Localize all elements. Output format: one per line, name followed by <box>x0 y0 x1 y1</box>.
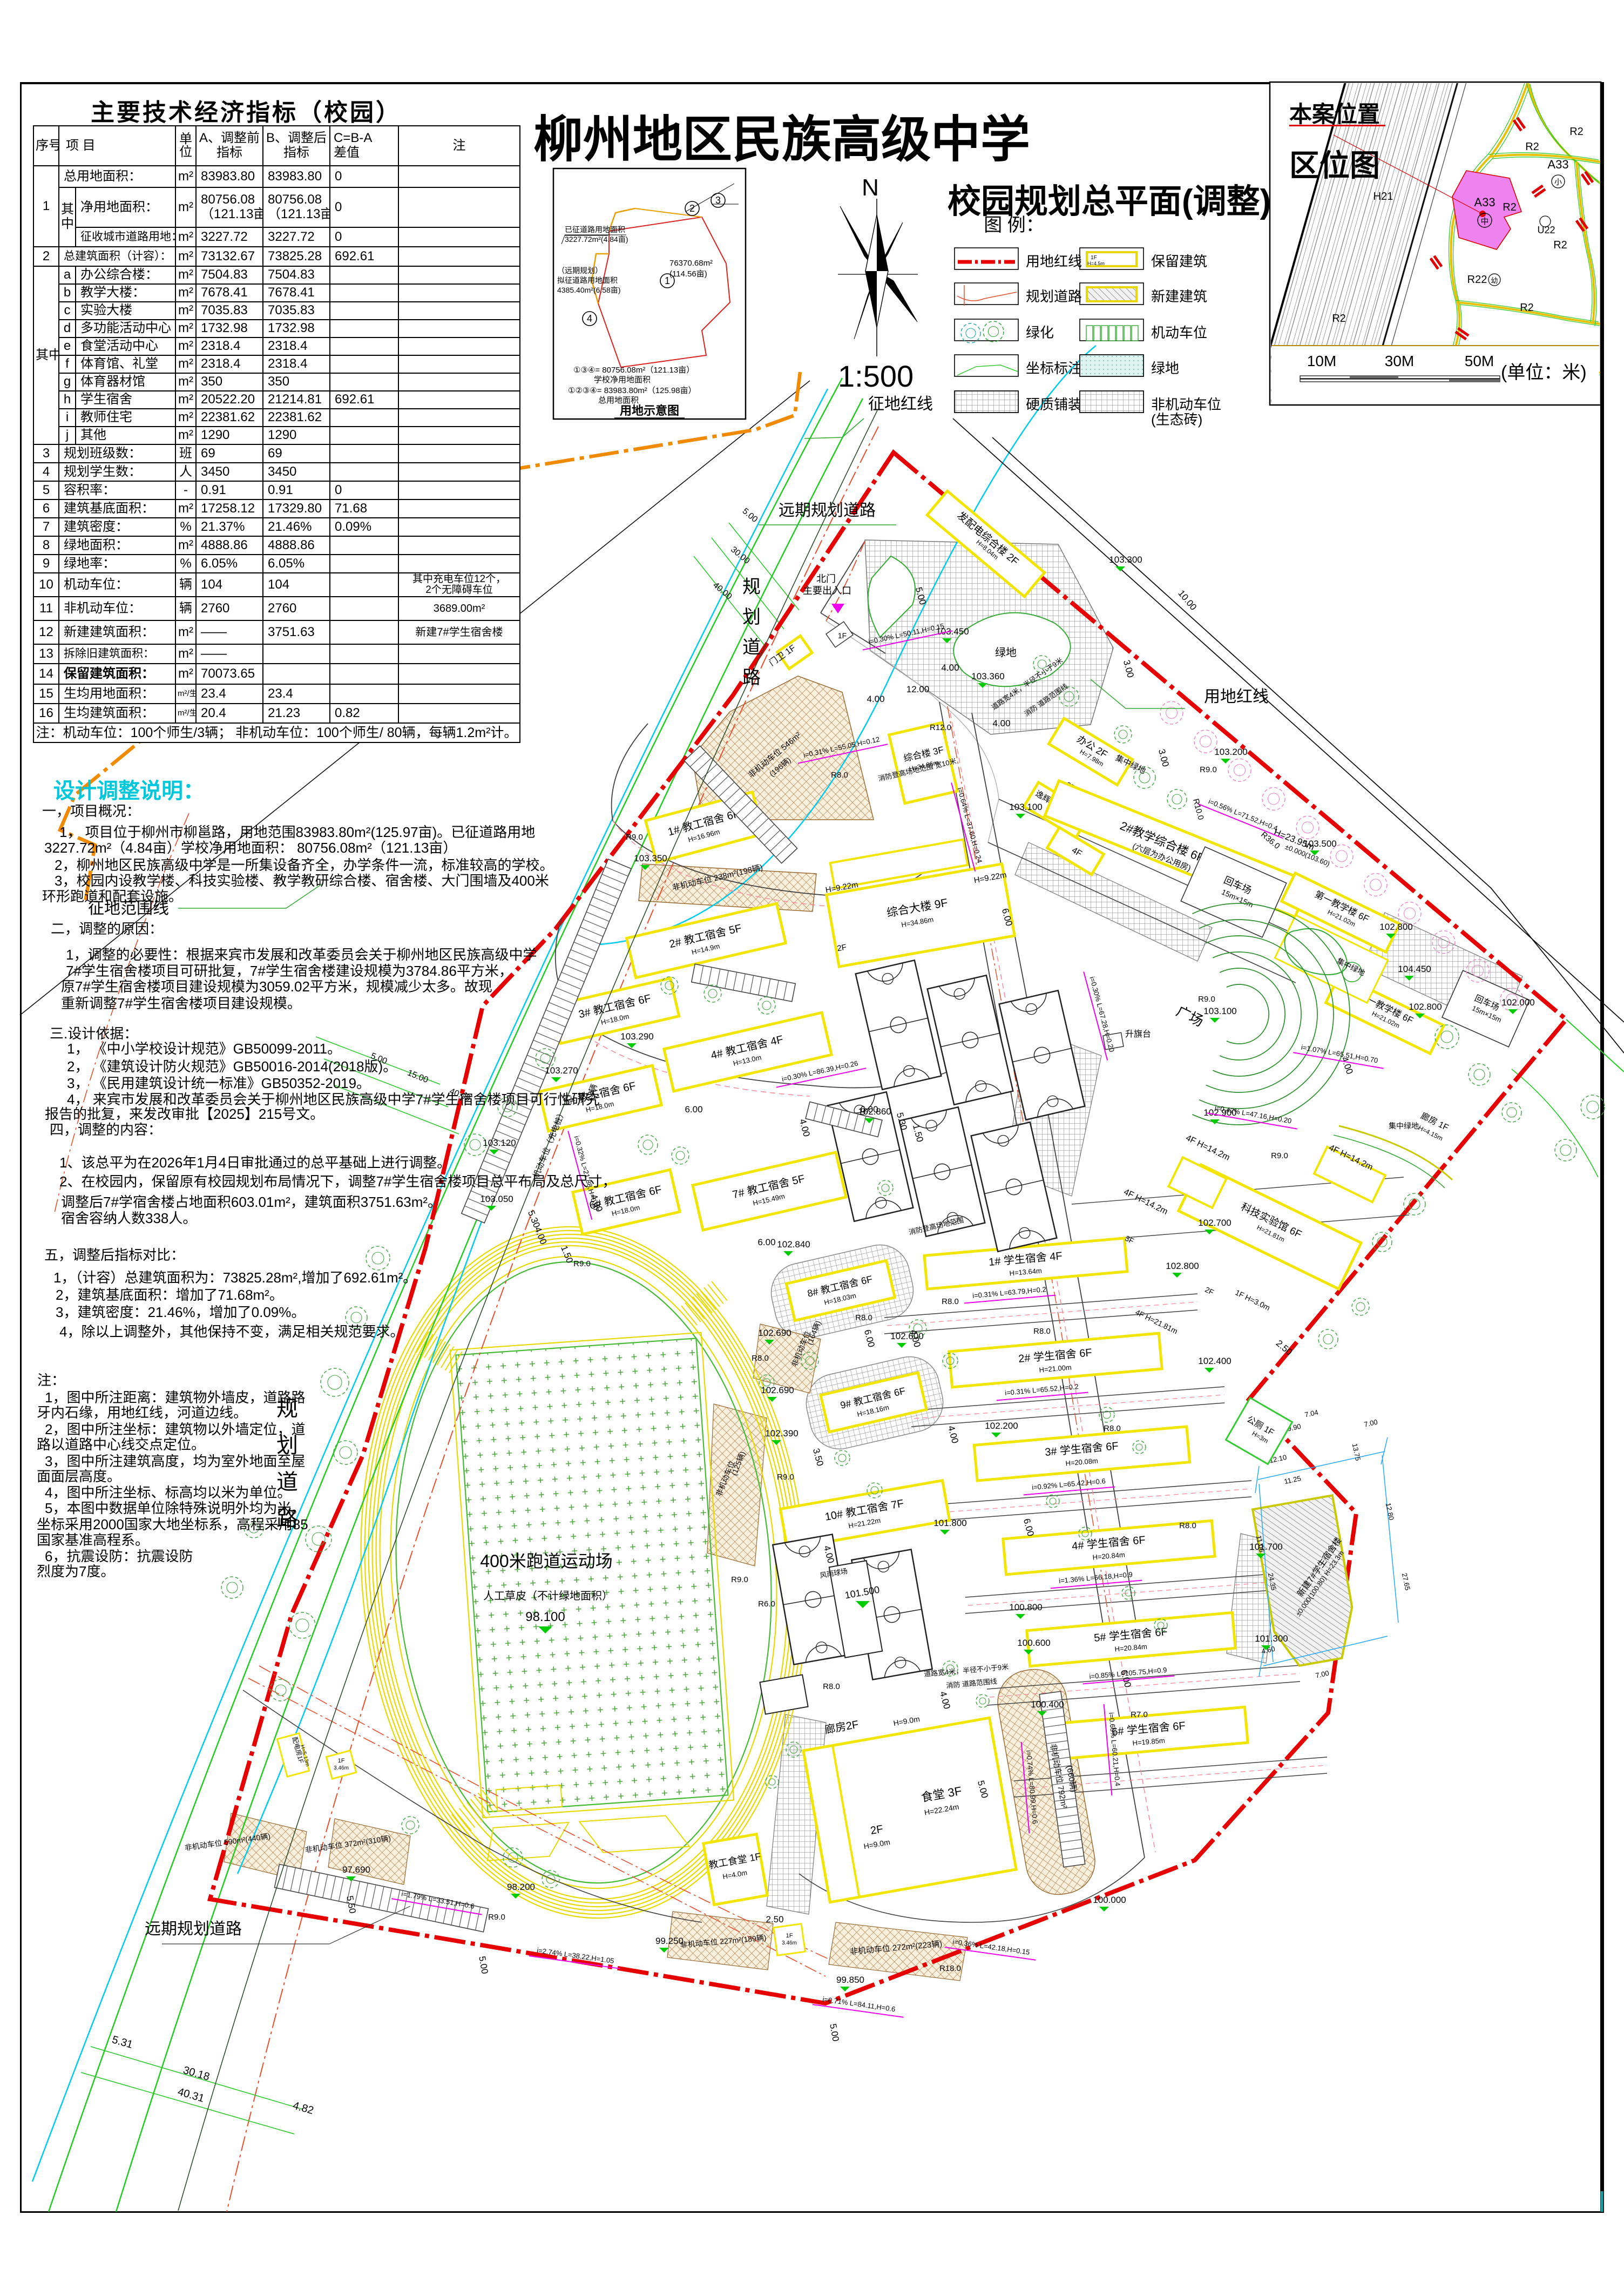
svg-text:(114.56亩): (114.56亩) <box>669 269 707 279</box>
svg-text:3.46m: 3.46m <box>782 1940 797 1946</box>
svg-text:3.50: 3.50 <box>811 1447 825 1467</box>
svg-text:R9.0: R9.0 <box>1200 765 1217 774</box>
svg-text:102.690: 102.690 <box>758 1328 791 1338</box>
svg-text:98.200: 98.200 <box>507 1882 535 1892</box>
svg-text:15.00: 15.00 <box>406 1068 430 1085</box>
svg-text:101.700: 101.700 <box>1249 1542 1282 1552</box>
svg-text:i=0.56% L=71.52,H=0.4: i=0.56% L=71.52,H=0.4 <box>1207 797 1279 832</box>
svg-text:R2: R2 <box>1332 313 1346 325</box>
svg-text:6.00: 6.00 <box>757 1237 775 1247</box>
svg-text:4.00: 4.00 <box>797 1118 812 1138</box>
svg-text:6.00: 6.00 <box>1021 1517 1036 1537</box>
svg-text:30.00: 30.00 <box>729 545 752 566</box>
svg-text:2F: 2F <box>1203 1285 1215 1297</box>
svg-text:40.00: 40.00 <box>711 580 734 602</box>
svg-text:4F H=14.2m: 4F H=14.2m <box>1184 1133 1231 1163</box>
svg-text:4.00: 4.00 <box>992 718 1010 728</box>
svg-text:4: 4 <box>587 313 592 324</box>
svg-text:50M: 50M <box>1465 353 1494 369</box>
svg-text:R10.0: R10.0 <box>1191 798 1206 821</box>
svg-text:103.360: 103.360 <box>971 671 1004 681</box>
svg-text:100.600: 100.600 <box>1017 1638 1050 1648</box>
svg-text:征地红线: 征地红线 <box>868 395 933 413</box>
svg-text:R12.0: R12.0 <box>930 723 951 732</box>
svg-text:绿化: 绿化 <box>1026 325 1054 341</box>
svg-text:N: N <box>862 174 879 201</box>
svg-text:划: 划 <box>742 607 761 627</box>
svg-text:规: 规 <box>742 577 761 597</box>
svg-text:2: 2 <box>689 203 695 214</box>
svg-text:R6.0: R6.0 <box>758 1599 775 1609</box>
svg-text:103.100: 103.100 <box>1009 802 1042 812</box>
svg-text:104.450: 104.450 <box>1398 964 1431 974</box>
svg-text:7.00: 7.00 <box>1363 1418 1378 1429</box>
svg-text:30.18: 30.18 <box>182 2064 211 2083</box>
svg-text:(生态砖): (生态砖) <box>1151 411 1202 428</box>
svg-text:1F: 1F <box>338 1758 345 1764</box>
svg-text:5.00: 5.00 <box>828 2023 841 2042</box>
svg-text:4.82: 4.82 <box>292 2099 315 2117</box>
svg-text:12.80: 12.80 <box>1384 1502 1396 1521</box>
svg-text:3227.72m²(4.84亩): 3227.72m²(4.84亩) <box>565 235 628 244</box>
svg-text:102.390: 102.390 <box>765 1428 798 1439</box>
svg-text:10.00: 10.00 <box>1176 588 1199 612</box>
svg-text:7.04: 7.04 <box>1304 1408 1319 1419</box>
svg-text:102.700: 102.700 <box>1198 1218 1231 1228</box>
svg-text:消防 道路范围线: 消防 道路范围线 <box>946 1677 998 1690</box>
svg-text:R9.0: R9.0 <box>488 1913 505 1922</box>
svg-text:102.400: 102.400 <box>1198 1356 1231 1366</box>
svg-text:1F H=3.0m: 1F H=3.0m <box>1234 1288 1271 1312</box>
svg-text:103.050: 103.050 <box>480 1194 513 1204</box>
svg-text:11.25: 11.25 <box>1283 1474 1302 1485</box>
svg-text:103.120: 103.120 <box>483 1138 516 1148</box>
svg-text:用地红线: 用地红线 <box>1026 253 1082 269</box>
svg-text:R2: R2 <box>1503 201 1517 213</box>
svg-text:100.000: 100.000 <box>1093 1895 1126 1905</box>
svg-text:A33: A33 <box>1547 158 1568 171</box>
svg-text:R2: R2 <box>1520 302 1534 314</box>
svg-text:4.00: 4.00 <box>867 694 884 704</box>
svg-text:4F H=14.2m: 4F H=14.2m <box>1122 1187 1169 1217</box>
svg-text:道: 道 <box>742 637 761 658</box>
svg-text:2F: 2F <box>836 943 847 954</box>
svg-text:30M: 30M <box>1385 353 1414 369</box>
svg-text:103.100: 103.100 <box>1203 1006 1236 1016</box>
svg-text:用地红线: 用地红线 <box>1204 688 1269 706</box>
svg-text:102.200: 102.200 <box>985 1421 1018 1431</box>
svg-text:6.00: 6.00 <box>685 1104 702 1115</box>
svg-text:R9.0: R9.0 <box>626 833 643 842</box>
svg-text:3.46m: 3.46m <box>334 1765 349 1771</box>
svg-text:北门: 北门 <box>816 573 836 584</box>
svg-text:103.290: 103.290 <box>620 1031 653 1042</box>
svg-text:廊房2F: 廊房2F <box>824 1718 860 1737</box>
svg-text:人工草皮（不计绿地面积）: 人工草皮（不计绿地面积） <box>483 1590 613 1602</box>
svg-text:R8.0: R8.0 <box>752 1354 769 1363</box>
svg-text:①②③④= 83983.80m²（125.98亩）: ①②③④= 83983.80m²（125.98亩） <box>568 386 696 395</box>
svg-text:已征道路用地面积: 已征道路用地面积 <box>565 225 625 234</box>
svg-text:102.800: 102.800 <box>1409 1002 1442 1012</box>
svg-text:1.50: 1.50 <box>559 1244 575 1265</box>
svg-text:2.50: 2.50 <box>766 1914 783 1924</box>
svg-text:R9.0: R9.0 <box>573 1259 591 1268</box>
svg-text:1F: 1F <box>838 631 847 640</box>
svg-text:R8.0: R8.0 <box>855 1313 872 1322</box>
svg-text:幼: 幼 <box>1491 276 1498 285</box>
svg-text:路: 路 <box>742 667 761 688</box>
svg-text:12.00: 12.00 <box>906 684 930 694</box>
svg-text:101.800: 101.800 <box>933 1518 966 1528</box>
svg-text:集中绿地: 集中绿地 <box>1389 1122 1419 1130</box>
svg-text:主要出入口: 主要出入口 <box>803 585 851 596</box>
svg-text:100.800: 100.800 <box>1009 1602 1042 1612</box>
svg-text:R9.0: R9.0 <box>1198 995 1215 1004</box>
svg-text:2F: 2F <box>870 1823 884 1837</box>
svg-text:4.00: 4.00 <box>938 1690 952 1710</box>
svg-text:3.00: 3.00 <box>1121 659 1136 679</box>
svg-text:i=0.31% L=63.79,H=0.2: i=0.31% L=63.79,H=0.2 <box>972 1285 1047 1300</box>
svg-text:R8.0: R8.0 <box>1104 1424 1121 1433</box>
svg-text:绿地: 绿地 <box>1151 360 1179 376</box>
svg-text:100.400: 100.400 <box>1031 1699 1064 1710</box>
svg-text:4385.40m²(6.58亩): 4385.40m²(6.58亩) <box>557 286 621 294</box>
svg-text:保留建筑: 保留建筑 <box>1151 253 1207 269</box>
svg-text:4.00: 4.00 <box>946 1424 960 1444</box>
svg-text:103.300: 103.300 <box>1109 555 1142 565</box>
svg-text:R18.0: R18.0 <box>939 1964 961 1973</box>
svg-text:27.65: 27.65 <box>1400 1572 1412 1591</box>
svg-text:R2: R2 <box>1553 239 1567 251</box>
svg-text:①③④= 80756.08m²（121.13亩）: ①③④= 80756.08m²（121.13亩） <box>573 365 694 375</box>
svg-text:广场: 广场 <box>1174 1003 1206 1030</box>
svg-text:（远期规划）: （远期规划） <box>557 266 603 275</box>
svg-text:103.270: 103.270 <box>545 1065 578 1076</box>
svg-text:新建建筑: 新建建筑 <box>1151 288 1207 305</box>
svg-text:远期规划道路: 远期规划道路 <box>145 1920 242 1938</box>
svg-text:6.00: 6.00 <box>862 1328 877 1348</box>
svg-text:400米跑道运动场: 400米跑道运动场 <box>480 1551 612 1571</box>
svg-text:R8.0: R8.0 <box>831 771 848 780</box>
svg-text:非机动车位: 非机动车位 <box>1151 396 1221 413</box>
svg-text:R9.0: R9.0 <box>731 1575 748 1584</box>
svg-text:A33: A33 <box>1474 195 1495 209</box>
svg-text:i=0.31% L=65.52,H=0.2: i=0.31% L=65.52,H=0.2 <box>1005 1382 1079 1397</box>
svg-text:坐标标注: 坐标标注 <box>1026 360 1082 376</box>
svg-text:101.300: 101.300 <box>1255 1633 1288 1644</box>
svg-text:5.30: 5.30 <box>895 1111 909 1131</box>
svg-text:U22: U22 <box>1537 225 1555 235</box>
svg-text:R8.0: R8.0 <box>1179 1521 1196 1530</box>
svg-text:102.840: 102.840 <box>777 1239 810 1250</box>
svg-text:6.00: 6.00 <box>860 1104 878 1115</box>
svg-text:道路宽4米，半径不小于9米: 道路宽4米，半径不小于9米 <box>924 1663 1009 1678</box>
svg-text:102.690: 102.690 <box>761 1385 794 1395</box>
svg-text:97.690: 97.690 <box>342 1865 370 1875</box>
svg-text:绿地: 绿地 <box>995 646 1017 659</box>
svg-text:小: 小 <box>1554 178 1562 186</box>
svg-text:拟征道路用地面积: 拟征道路用地面积 <box>557 276 618 285</box>
svg-text:R2: R2 <box>1525 141 1539 153</box>
svg-text:升旗台: 升旗台 <box>1125 1029 1151 1039</box>
svg-text:103.350: 103.350 <box>634 853 667 863</box>
svg-text:规划道路: 规划道路 <box>1026 288 1082 305</box>
svg-text:R22: R22 <box>1467 274 1487 286</box>
svg-text:102.000: 102.000 <box>1501 997 1534 1008</box>
svg-text:40.31: 40.31 <box>177 2086 206 2105</box>
svg-text:103.500: 103.500 <box>1303 839 1336 849</box>
svg-text:R7.0: R7.0 <box>1131 1710 1148 1719</box>
svg-text:R8.0: R8.0 <box>1033 1327 1051 1336</box>
svg-text:R9.0: R9.0 <box>1271 1151 1288 1160</box>
svg-text:5.31: 5.31 <box>111 2034 134 2051</box>
svg-text:10M: 10M <box>1307 353 1336 369</box>
svg-text:103.200: 103.200 <box>1214 747 1247 757</box>
svg-text:硬质铺装: 硬质铺装 <box>1026 396 1082 413</box>
svg-text:中: 中 <box>1480 217 1488 226</box>
svg-text:用地示意图: 用地示意图 <box>620 404 679 417</box>
svg-text:i=0.92% L=65.42,H=0.6: i=0.92% L=65.42,H=0.6 <box>1032 1477 1106 1491</box>
svg-text:5.00: 5.00 <box>741 507 760 524</box>
svg-text:R2: R2 <box>1569 126 1584 138</box>
svg-text:H=4.5m: H=4.5m <box>1087 261 1105 266</box>
svg-text:机动车位: 机动车位 <box>1151 325 1207 341</box>
svg-text:3.00: 3.00 <box>1156 748 1171 768</box>
svg-text:5.00: 5.00 <box>477 1955 490 1975</box>
svg-text:102.800: 102.800 <box>1379 922 1412 932</box>
svg-text:R8.0: R8.0 <box>823 1682 840 1691</box>
svg-text:R8.0: R8.0 <box>942 1297 959 1306</box>
svg-text:H=9.0m: H=9.0m <box>892 1714 920 1727</box>
svg-text:7.00: 7.00 <box>1315 1669 1330 1680</box>
svg-text:4.00: 4.00 <box>941 663 959 673</box>
svg-text:99.850: 99.850 <box>836 1975 864 1985</box>
svg-text:98.100: 98.100 <box>525 1610 565 1624</box>
svg-text:R9.0: R9.0 <box>777 1473 794 1482</box>
svg-text:1F: 1F <box>1091 255 1097 261</box>
svg-text:学校净用地面积: 学校净用地面积 <box>594 375 651 384</box>
svg-text:76370.68m²: 76370.68m² <box>669 259 713 268</box>
svg-text:远期规划道路: 远期规划道路 <box>779 502 876 519</box>
svg-text:H21: H21 <box>1373 191 1393 202</box>
svg-text:102.800: 102.800 <box>1166 1261 1199 1271</box>
svg-text:1F: 1F <box>786 1933 793 1939</box>
